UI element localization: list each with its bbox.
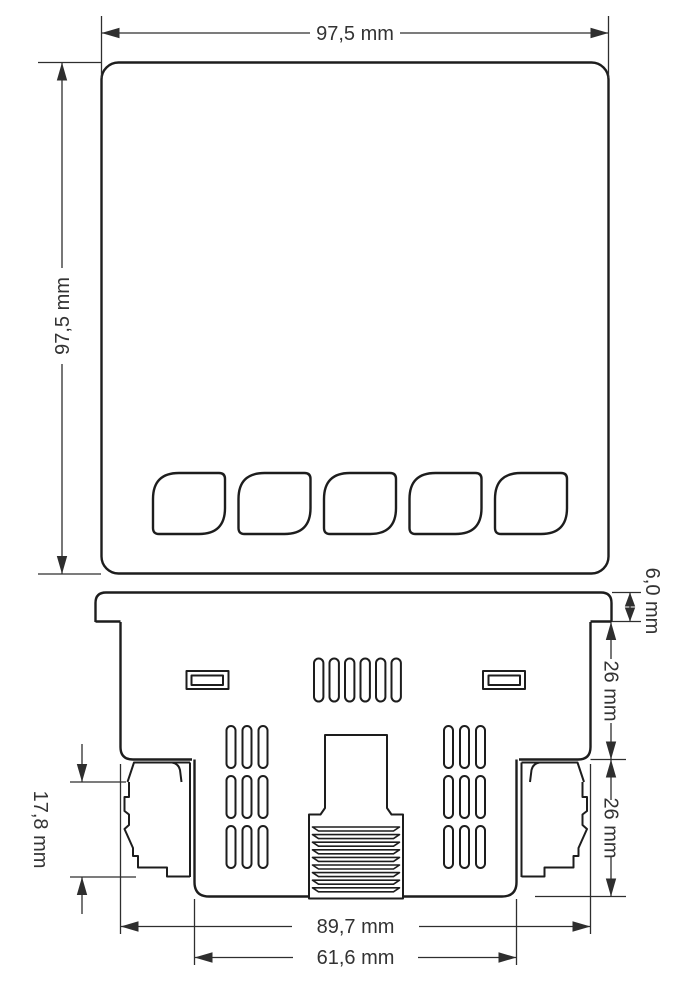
front-button xyxy=(153,473,225,534)
technical-drawing: 97,5 mm 97,5 mm xyxy=(0,0,696,991)
dim-front-height: 97,5 mm xyxy=(38,63,101,575)
dim-bezel-thickness: 6,0 mm xyxy=(612,568,663,635)
dim-front-width: 97,5 mm xyxy=(102,16,609,78)
cable-connector xyxy=(309,735,403,899)
dim-label-lower-depth: 26 mm xyxy=(600,797,622,858)
rear-slot-left xyxy=(187,671,229,689)
connector-ribs xyxy=(313,827,400,892)
dim-label-front-height: 97,5 mm xyxy=(52,277,74,355)
front-button xyxy=(410,473,482,534)
front-bezel-outline xyxy=(102,63,609,574)
dim-label-clip-height: 17,8 mm xyxy=(29,791,51,869)
rear-slot-right xyxy=(483,671,525,689)
front-button-row xyxy=(153,473,567,534)
dim-label-front-width: 97,5 mm xyxy=(316,23,394,45)
rear-view: 6,0 mm 26 mm 26 mm 17,8 mm 89,7 mm xyxy=(29,568,663,969)
vent-group-top xyxy=(314,659,401,702)
mounting-clip-left xyxy=(125,763,191,878)
front-button xyxy=(324,473,396,534)
mounting-clip-right xyxy=(522,763,588,878)
rear-bezel-flange xyxy=(96,593,612,623)
dim-upper-depth: 26 mm xyxy=(591,622,627,760)
vent-group-left xyxy=(227,726,268,868)
front-button xyxy=(495,473,567,534)
dim-lower-depth: 26 mm xyxy=(535,760,626,897)
dimension-drawing-canvas: 97,5 mm 97,5 mm xyxy=(0,0,696,991)
vent-group-right xyxy=(444,726,485,868)
dim-label-upper-depth: 26 mm xyxy=(600,660,622,721)
front-button xyxy=(239,473,311,534)
dim-label-bezel-thickness: 6,0 mm xyxy=(641,568,663,635)
dim-label-terminal-width: 61,6 mm xyxy=(317,947,395,969)
dim-label-case-width: 89,7 mm xyxy=(317,916,395,938)
front-view: 97,5 mm 97,5 mm xyxy=(38,16,609,574)
